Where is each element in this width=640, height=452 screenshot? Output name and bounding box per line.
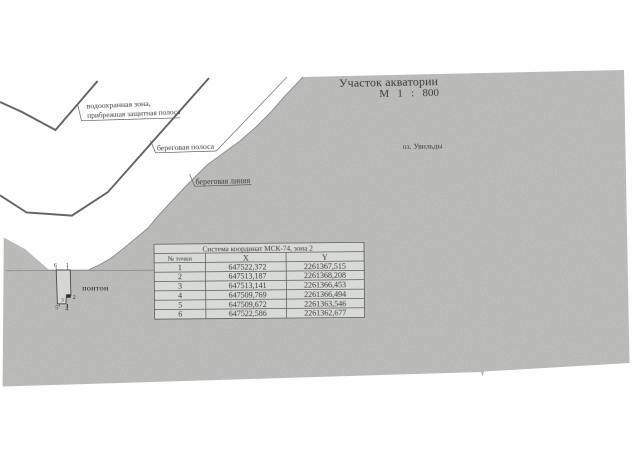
svg-text:2261366,453: 2261366,453 [304, 280, 346, 289]
svg-text:3: 3 [61, 298, 64, 304]
svg-text:2: 2 [73, 295, 76, 301]
svg-text:Y: Y [322, 253, 328, 262]
svg-text:Система координат МСК-74, зона: Система координат МСК-74, зона 2 [202, 243, 313, 253]
svg-text:647513,141: 647513,141 [229, 281, 267, 290]
svg-text:647509,769: 647509,769 [229, 290, 267, 299]
svg-text:647522,586: 647522,586 [229, 309, 267, 318]
svg-text:2261362,677: 2261362,677 [304, 308, 346, 317]
svg-text:2261367,515: 2261367,515 [304, 262, 346, 271]
svg-text:X: X [243, 253, 249, 262]
svg-text:647513,187: 647513,187 [228, 272, 266, 281]
svg-text:2261366,494: 2261366,494 [304, 290, 346, 299]
svg-text:3: 3 [178, 282, 182, 291]
svg-text:6: 6 [54, 263, 57, 269]
svg-text:№ точки: № точки [168, 256, 193, 263]
svg-text:2261363,546: 2261363,546 [304, 299, 346, 308]
svg-text:оз. Увильды: оз. Увильды [402, 141, 443, 151]
svg-text:2261368,208: 2261368,208 [304, 271, 346, 280]
svg-text:ПОНТОН: ПОНТОН [82, 287, 109, 293]
svg-text:2: 2 [178, 272, 182, 281]
svg-text:647522,372: 647522,372 [228, 262, 266, 271]
svg-text:береговая полоса: береговая полоса [157, 142, 215, 153]
svg-text:1: 1 [66, 263, 69, 269]
svg-text:6: 6 [178, 310, 182, 319]
svg-text:5: 5 [178, 300, 182, 309]
svg-text:М 1 : 800: М 1 : 800 [379, 87, 439, 100]
svg-text:1: 1 [178, 263, 182, 272]
svg-text:647509,672: 647509,672 [229, 300, 267, 309]
svg-text:5: 5 [55, 306, 58, 312]
svg-text:береговая линия: береговая линия [196, 176, 251, 186]
svg-text:4: 4 [178, 291, 182, 300]
svg-text:4: 4 [65, 307, 68, 313]
